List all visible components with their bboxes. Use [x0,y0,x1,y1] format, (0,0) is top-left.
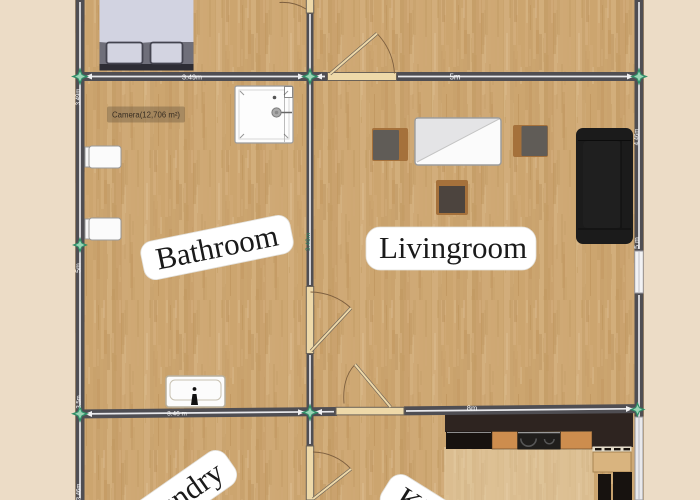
svg-text:Livingroom: Livingroom [379,230,527,265]
svg-text:3.49m: 3.49m [76,89,82,106]
svg-text:Camera(12,706 m²): Camera(12,706 m²) [112,111,180,120]
svg-text:8m: 8m [467,403,477,412]
svg-text:3.46m: 3.46m [77,484,83,500]
svg-text:5 m: 5 m [634,237,641,249]
svg-text:3.49m: 3.49m [182,72,202,81]
svg-text:3.5m: 3.5m [77,395,83,408]
svg-text:5m: 5m [449,72,460,81]
svg-text:4.46m: 4.46m [635,129,641,146]
svg-text:3.46 m: 3.46 m [167,411,187,418]
svg-text:3.46m: 3.46m [305,233,312,251]
svg-text:5m: 5m [76,263,83,273]
